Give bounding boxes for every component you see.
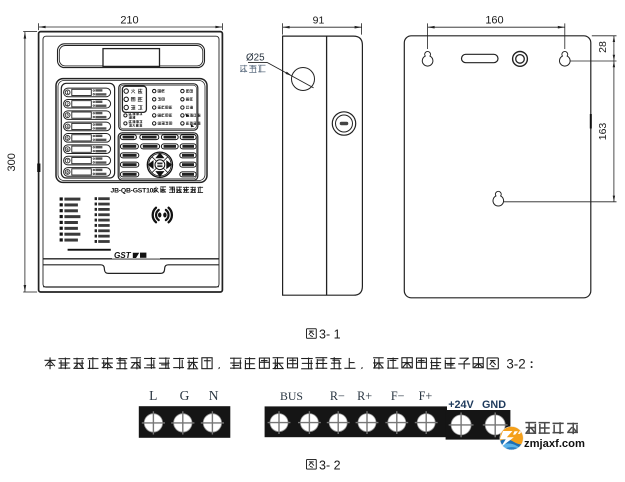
svg-text:R−: R− (330, 389, 345, 403)
svg-text:zmjaxf.com: zmjaxf.com (524, 438, 585, 450)
svg-text:JB-QB-GST100: JB-QB-GST100 (111, 188, 158, 195)
svg-text:160: 160 (485, 15, 503, 27)
svg-text:210: 210 (120, 15, 138, 27)
svg-text:3-2: 3-2 (506, 356, 525, 371)
svg-text:Ø25: Ø25 (246, 53, 265, 64)
svg-text:R+: R+ (357, 389, 372, 403)
svg-text:L: L (149, 388, 157, 403)
svg-text:BUS: BUS (280, 389, 303, 403)
svg-text:F+: F+ (419, 389, 433, 403)
svg-text:163: 163 (597, 123, 609, 141)
svg-text:28: 28 (597, 41, 609, 53)
svg-text:91: 91 (313, 15, 325, 27)
svg-text:3- 1: 3- 1 (319, 328, 341, 342)
svg-text:GST: GST (114, 251, 132, 260)
svg-text:G: G (180, 388, 190, 403)
svg-text:N: N (209, 388, 219, 403)
svg-text:300: 300 (6, 153, 18, 171)
svg-text:GND: GND (482, 399, 506, 411)
svg-text:+24V: +24V (448, 399, 474, 411)
svg-text:3- 2: 3- 2 (319, 458, 341, 472)
svg-text:F−: F− (391, 389, 405, 403)
